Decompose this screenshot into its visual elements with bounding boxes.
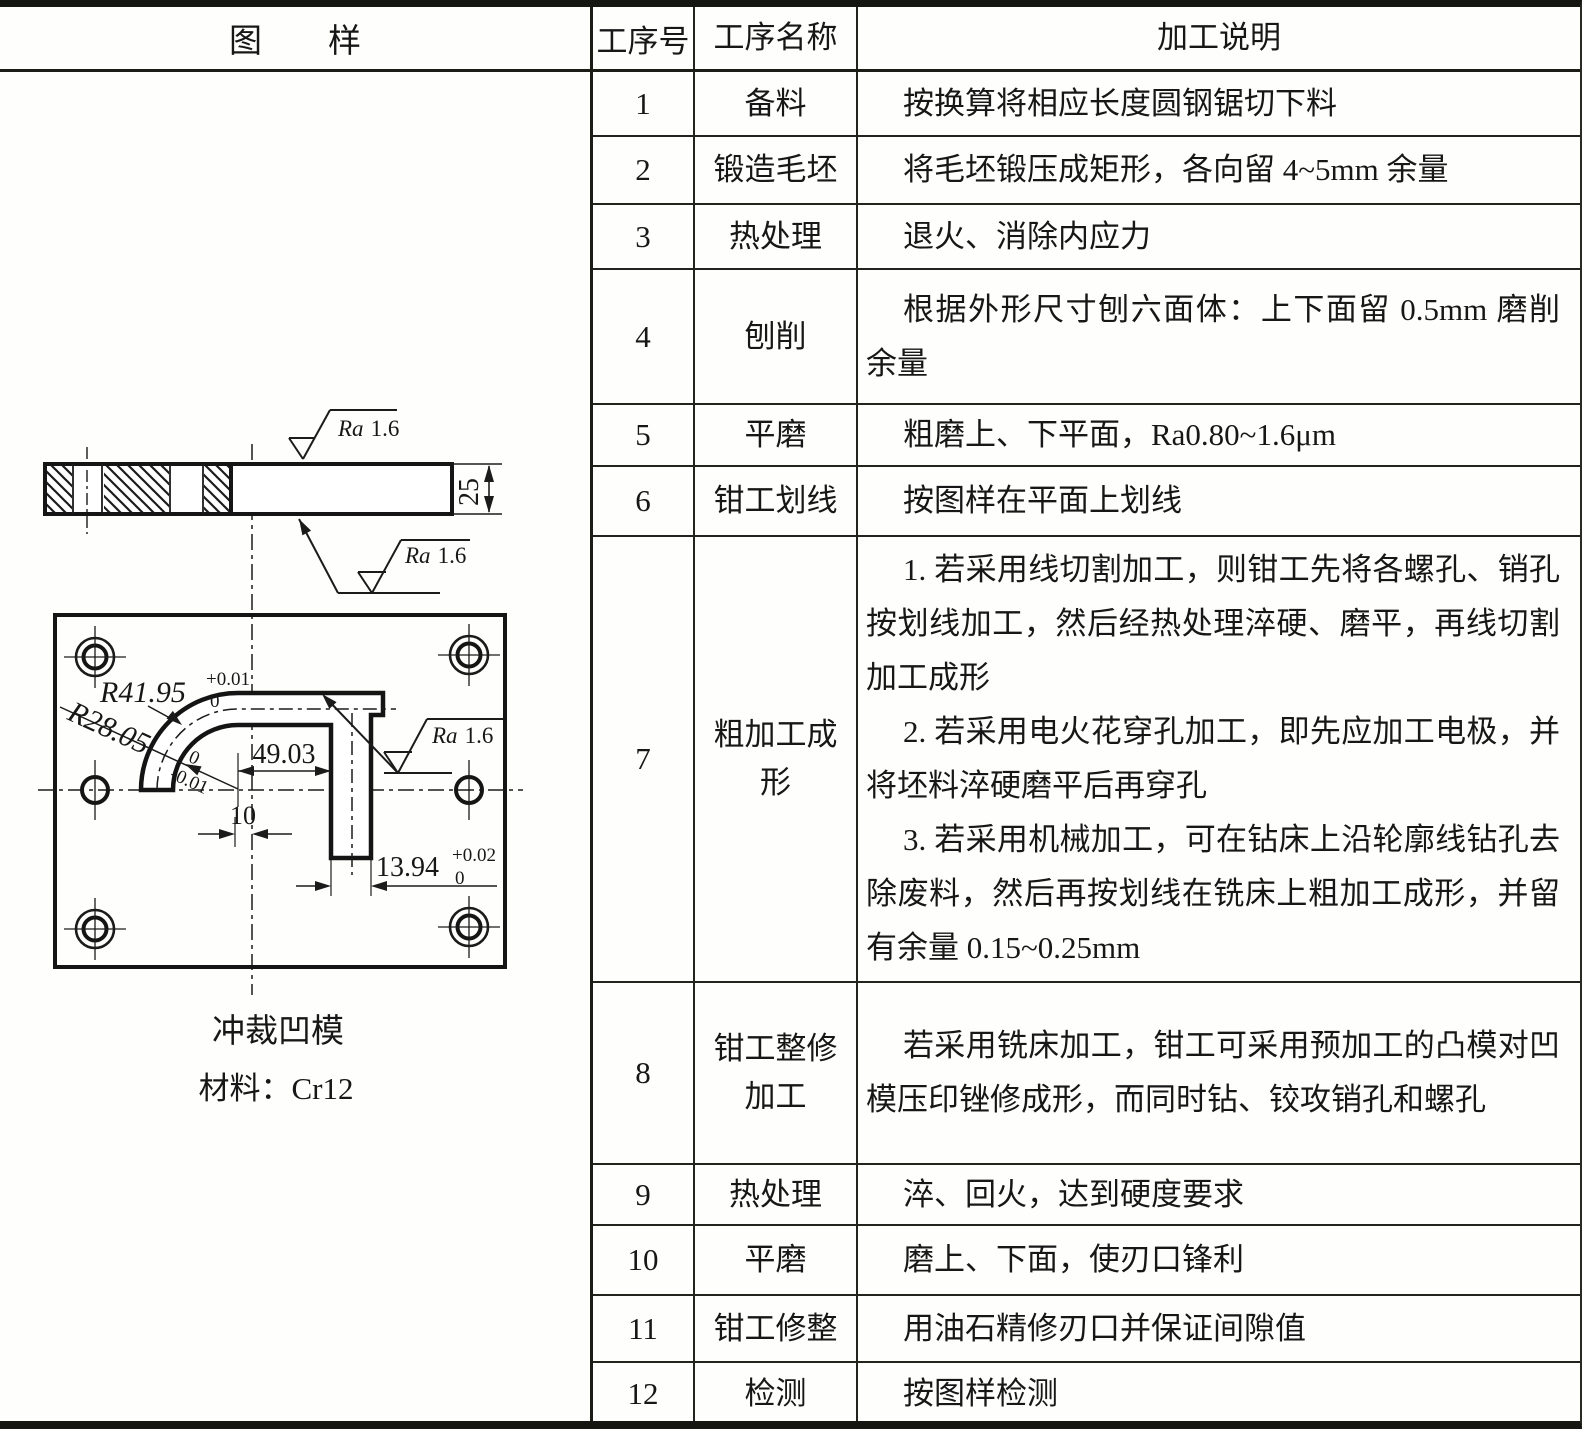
step-name: 热处理 [695,205,858,268]
step-no: 4 [593,270,695,403]
svg-text:0: 0 [455,868,465,889]
svg-text:+0.02: +0.02 [452,845,496,866]
dim-thickness: 25 [452,464,502,514]
table-row: 10 平磨 磨上、下面，使刃口锋利 [593,1226,1580,1296]
dim-25-label: 25 [454,478,485,506]
step-no: 2 [593,137,695,203]
dim-4903-label: 49.03 [253,739,316,770]
svg-text:0: 0 [210,691,220,712]
step-no: 12 [593,1363,695,1425]
table-row: 5 平磨 粗磨上、下平面，Ra0.80~1.6μm [593,405,1580,467]
ra-bottom-label: Ra1.6 [404,543,466,568]
step-desc: 若采用铣床加工，钳工可采用预加工的凸模对凹模压印锉修成形，而同时钻、铰攻销孔和螺… [858,983,1580,1163]
step-name: 粗加工成形 [695,537,858,981]
table-row: 12 检测 按图样检测 [593,1363,1580,1425]
plan-view: R41.95 +0.01 0 R28.05 0 -0.01 [38,615,523,967]
die-plate-outline [55,615,505,967]
sample-column-header: 图样 [0,7,590,72]
table-row: 9 热处理 淬、回火，达到硬度要求 [593,1165,1580,1226]
table-row: 2 锻造毛坯 将毛坯锻压成矩形，各向留 4~5mm 余量 [593,137,1580,205]
table-row: 6 钳工划线 按图样在平面上划线 [593,467,1580,537]
dim-1394-label: 13.94 [376,852,439,883]
bolt-hole-icon [438,624,500,686]
drawing-caption-title: 冲裁凹模 [212,1013,344,1050]
ra-plan-label: Ra1.6 [431,723,493,748]
step-no: 3 [593,205,695,268]
dim-offset: 10 [198,801,292,847]
process-sheet: 图样 [0,0,1582,1429]
dim-slot-width: 13.94 +0.02 0 [296,845,497,896]
table-row: 3 热处理 退火、消除内应力 [593,205,1580,270]
step-no: 6 [593,467,695,535]
step-name: 钳工划线 [695,467,858,535]
step-desc: 按图样检测 [858,1363,1580,1425]
table-header-row: 工序号 工序名称 加工说明 [593,7,1580,72]
arrow-icon [484,496,494,513]
step-no: 8 [593,983,695,1163]
table-row: 7 粗加工成形 1. 若采用线切割加工，则钳工先将各螺孔、销孔按划线加工，然后经… [593,537,1580,983]
die-drawing-svg: 25 Ra1.6 [0,72,590,1421]
step-name: 备料 [695,72,858,135]
header-desc: 加工说明 [858,7,1580,69]
step-desc: 按图样在平面上划线 [858,467,1580,535]
table-row: 1 备料 按换算将相应长度圆钢锯切下料 [593,72,1580,137]
step-name: 平磨 [695,1226,858,1294]
arrow-icon [252,829,268,839]
step-name: 锻造毛坯 [695,137,858,203]
step-no: 7 [593,537,695,981]
step-name: 检测 [695,1363,858,1425]
step-desc: 按换算将相应长度圆钢锯切下料 [858,72,1580,135]
step-name: 热处理 [695,1165,858,1224]
step-no: 5 [593,405,695,465]
arrow-icon [484,465,494,482]
ra-top-label: Ra1.6 [337,416,399,441]
hatch-area-icon [47,466,72,512]
svg-text:-0.01: -0.01 [167,763,212,799]
step-no: 1 [593,72,695,135]
hatch-area-icon [204,466,230,512]
step-desc: 用油石精修刃口并保证间隙值 [858,1296,1580,1361]
sample-column: 图样 [0,7,593,1421]
arrow-icon [315,881,331,891]
step-desc: 磨上、下面，使刃口锋利 [858,1226,1580,1294]
step-desc: 粗磨上、下平面，Ra0.80~1.6μm [858,405,1580,465]
step-name: 平磨 [695,405,858,465]
step-no: 11 [593,1296,695,1361]
step-desc: 1. 若采用线切割加工，则钳工先将各螺孔、销孔按划线加工，然后经热处理淬硬、磨平… [858,537,1580,981]
step-desc: 淬、回火，达到硬度要求 [858,1165,1580,1224]
table-row: 8 钳工整修 加工 若采用铣床加工，钳工可采用预加工的凸模对凹模压印锉修成形，而… [593,983,1580,1165]
step-desc: 将毛坯锻压成矩形，各向留 4~5mm 余量 [858,137,1580,203]
svg-text:+0.01: +0.01 [206,669,250,690]
arrow-icon [299,519,311,535]
step-name: 钳工修整 [695,1296,858,1361]
arrow-icon [219,829,235,839]
table-row: 11 钳工修整 用油石精修刃口并保证间隙值 [593,1296,1580,1363]
header-no: 工序号 [593,7,695,69]
hatch-area-icon [104,466,169,512]
header-name: 工序名称 [695,7,858,69]
dim-10-label: 10 [230,801,256,830]
step-name: 钳工整修 加工 [695,983,858,1163]
drawing-caption-material: 材料：Cr12 [199,1071,354,1106]
step-no: 10 [593,1226,695,1294]
dim-r41-label: R41.95 [99,676,186,709]
step-desc: 退火、消除内应力 [858,205,1580,268]
table-row: 4 刨削 根据外形尺寸刨六面体：上下面留 0.5mm 磨削余量 [593,270,1580,405]
process-table: 工序号 工序名称 加工说明 1 备料 按换算将相应长度圆钢锯切下料 2 锻造毛坯… [593,7,1580,1421]
bolt-hole-icon [64,898,126,960]
bolt-hole-icon [438,896,500,958]
sample-header-label: 图样 [229,14,427,62]
die-drawing: 25 Ra1.6 [0,72,590,1421]
step-no: 9 [593,1165,695,1224]
step-name: 刨削 [695,270,858,403]
arrow-icon [315,766,331,776]
step-desc: 根据外形尺寸刨六面体：上下面留 0.5mm 磨削余量 [858,270,1580,403]
